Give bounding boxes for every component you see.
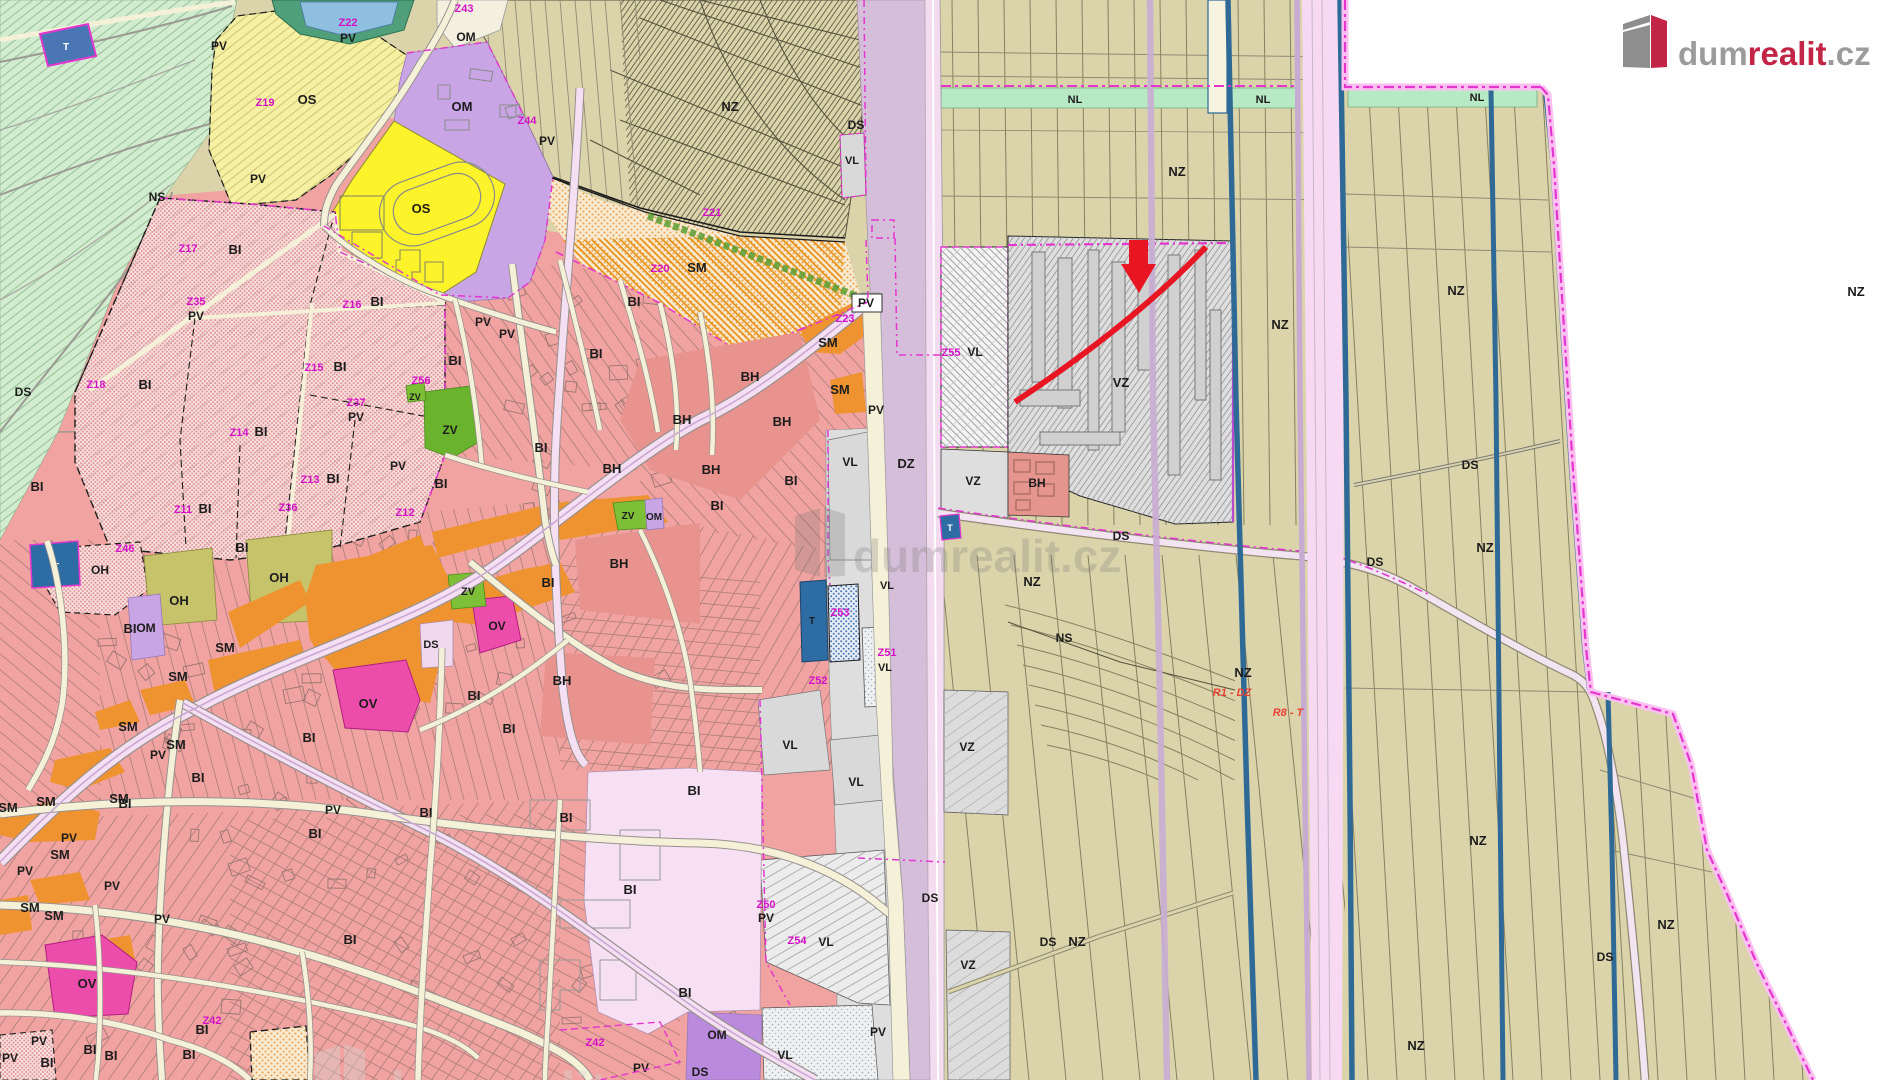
svg-text:OM: OM: [707, 1028, 726, 1042]
svg-text:dumrealit.cz: dumrealit.cz: [1678, 35, 1871, 72]
svg-text:DS: DS: [1462, 458, 1479, 472]
svg-text:PV: PV: [499, 327, 515, 341]
svg-text:Z15: Z15: [305, 362, 324, 374]
svg-text:BI: BI: [124, 621, 137, 636]
svg-text:VL: VL: [842, 455, 857, 469]
svg-text:VZ: VZ: [965, 474, 980, 488]
svg-text:PV: PV: [340, 31, 356, 45]
svg-text:PV: PV: [250, 172, 266, 186]
svg-text:SM: SM: [168, 669, 188, 684]
svg-text:Z52: Z52: [809, 675, 828, 687]
svg-text:BI: BI: [139, 377, 152, 392]
svg-text:PV: PV: [2, 1051, 18, 1065]
svg-text:BI: BI: [344, 932, 357, 947]
svg-text:PV: PV: [348, 410, 364, 424]
svg-text:SM: SM: [44, 908, 64, 923]
svg-text:PV: PV: [188, 309, 204, 323]
svg-text:DS: DS: [848, 118, 865, 132]
svg-text:VL: VL: [782, 738, 797, 752]
svg-text:OH: OH: [169, 593, 189, 608]
svg-text:NZ: NZ: [1168, 164, 1185, 179]
svg-text:BI: BI: [334, 359, 347, 374]
svg-text:ZV: ZV: [409, 392, 421, 402]
svg-text:SM: SM: [118, 719, 138, 734]
svg-text:VL: VL: [845, 155, 859, 167]
svg-text:NL: NL: [1068, 94, 1083, 106]
svg-text:Z20: Z20: [651, 263, 670, 275]
svg-text:PV: PV: [211, 39, 227, 53]
svg-text:DS: DS: [692, 1065, 709, 1079]
svg-text:BI: BI: [309, 826, 322, 841]
svg-text:PV: PV: [31, 1034, 47, 1048]
svg-text:SM: SM: [0, 800, 18, 815]
svg-text:BH: BH: [1028, 476, 1045, 490]
svg-text:Z55: Z55: [942, 347, 961, 359]
svg-text:DS: DS: [1367, 555, 1384, 569]
svg-text:SM: SM: [830, 382, 850, 397]
svg-text:OS: OS: [298, 92, 317, 107]
svg-text:SM: SM: [109, 791, 129, 806]
svg-text:OS: OS: [412, 201, 431, 216]
svg-text:Z18: Z18: [87, 379, 106, 391]
svg-text:OV: OV: [359, 696, 378, 711]
svg-text:ZV: ZV: [442, 423, 457, 437]
svg-text:Z56: Z56: [412, 375, 431, 387]
svg-text:Z22: Z22: [339, 17, 358, 29]
svg-text:SM: SM: [36, 794, 56, 809]
svg-text:PV: PV: [858, 296, 874, 310]
svg-text:NZ: NZ: [1234, 665, 1251, 680]
svg-text:Z50: Z50: [757, 899, 776, 911]
svg-text:BI: BI: [183, 1047, 196, 1062]
svg-text:BI: BI: [711, 498, 724, 513]
svg-text:BI: BI: [560, 810, 573, 825]
svg-text:dumrealit.cz: dumrealit.cz: [373, 1062, 676, 1080]
svg-text:BH: BH: [673, 412, 692, 427]
svg-text:OH: OH: [91, 563, 109, 577]
svg-text:NZ: NZ: [1407, 1038, 1424, 1053]
svg-text:BI: BI: [84, 1042, 97, 1057]
svg-text:PV: PV: [758, 911, 774, 925]
svg-text:BI: BI: [420, 805, 433, 820]
svg-text:OH: OH: [269, 570, 289, 585]
svg-text:PV: PV: [17, 864, 33, 878]
svg-text:SM: SM: [818, 335, 838, 350]
svg-text:NZ: NZ: [721, 99, 738, 114]
svg-text:Z35: Z35: [187, 296, 206, 308]
svg-text:NZ: NZ: [1469, 833, 1486, 848]
svg-text:SM: SM: [687, 260, 707, 275]
svg-text:BH: BH: [603, 461, 622, 476]
svg-text:ZV: ZV: [622, 511, 635, 522]
svg-text:BH: BH: [741, 369, 760, 384]
svg-text:OM: OM: [646, 512, 662, 523]
svg-text:Z37: Z37: [347, 397, 366, 409]
svg-text:BI: BI: [542, 575, 555, 590]
svg-text:BI: BI: [303, 730, 316, 745]
svg-text:BI: BI: [503, 721, 516, 736]
svg-text:PV: PV: [870, 1025, 886, 1039]
svg-text:Z16: Z16: [343, 299, 362, 311]
svg-text:Z42: Z42: [586, 1037, 605, 1049]
svg-text:BI: BI: [327, 471, 340, 486]
svg-text:PV: PV: [390, 459, 406, 473]
svg-text:Z11: Z11: [174, 504, 192, 516]
svg-text:Z53: Z53: [831, 607, 850, 619]
svg-text:DZ: DZ: [897, 456, 914, 471]
svg-text:NS: NS: [1056, 631, 1073, 645]
svg-text:VZ: VZ: [1113, 375, 1130, 390]
svg-text:BI: BI: [199, 501, 212, 516]
svg-text:Z54: Z54: [788, 935, 808, 947]
svg-text:BI: BI: [688, 783, 701, 798]
svg-text:DS: DS: [1597, 950, 1614, 964]
svg-text:NS: NS: [149, 190, 166, 204]
svg-text:PV: PV: [104, 879, 120, 893]
svg-text:R1 - DZ: R1 - DZ: [1213, 687, 1253, 699]
svg-text:OM: OM: [452, 99, 473, 114]
svg-text:BI: BI: [679, 985, 692, 1000]
svg-text:NL: NL: [1256, 94, 1271, 106]
svg-text:NZ: NZ: [1476, 540, 1493, 555]
svg-text:Z36: Z36: [279, 502, 298, 514]
svg-text:BI: BI: [624, 882, 637, 897]
svg-text:BH: BH: [702, 462, 721, 477]
svg-text:DS: DS: [423, 639, 438, 651]
svg-text:Z43: Z43: [455, 3, 474, 15]
svg-text:BI: BI: [236, 540, 249, 555]
svg-text:BI: BI: [468, 688, 481, 703]
svg-text:BI: BI: [41, 1055, 54, 1070]
svg-text:Z13: Z13: [301, 474, 320, 486]
svg-text:NZ: NZ: [1847, 284, 1864, 299]
svg-text:SM: SM: [20, 900, 40, 915]
svg-text:R8 - T: R8 - T: [1273, 707, 1305, 719]
svg-text:PV: PV: [868, 403, 884, 417]
svg-text:BI: BI: [255, 424, 268, 439]
svg-text:BI: BI: [105, 1048, 118, 1063]
svg-text:DS: DS: [15, 385, 32, 399]
svg-text:BI: BI: [449, 353, 462, 368]
svg-text:PV: PV: [61, 831, 77, 845]
svg-text:Z23: Z23: [836, 313, 855, 325]
svg-text:Z17: Z17: [179, 243, 198, 255]
svg-text:BI: BI: [628, 294, 641, 309]
svg-text:Z12: Z12: [396, 507, 415, 519]
svg-text:VL: VL: [967, 345, 982, 359]
svg-text:BI: BI: [229, 242, 242, 257]
svg-text:PV: PV: [154, 912, 170, 926]
svg-text:Z42: Z42: [203, 1015, 222, 1027]
svg-text:Z51: Z51: [878, 647, 897, 659]
svg-text:Z19: Z19: [256, 97, 275, 109]
svg-text:Z21: Z21: [703, 207, 722, 219]
svg-text:BH: BH: [553, 673, 572, 688]
svg-text:T: T: [809, 616, 815, 627]
svg-text:BI: BI: [785, 473, 798, 488]
svg-text:VZ: VZ: [960, 958, 975, 972]
svg-text:VL: VL: [777, 1048, 792, 1062]
svg-text:BH: BH: [773, 414, 792, 429]
svg-text:NL: NL: [1470, 92, 1485, 104]
svg-text:Z44: Z44: [518, 115, 538, 127]
svg-text:dumrealit.cz: dumrealit.cz: [853, 530, 1121, 582]
svg-text:NZ: NZ: [1657, 917, 1674, 932]
svg-text:PV: PV: [325, 803, 341, 817]
svg-text:OV: OV: [78, 976, 97, 991]
svg-text:SM: SM: [50, 847, 70, 862]
svg-text:PV: PV: [539, 134, 555, 148]
svg-text:BI: BI: [371, 294, 384, 309]
svg-text:OM: OM: [456, 30, 475, 44]
svg-text:OM: OM: [136, 621, 155, 635]
svg-text:PV: PV: [475, 315, 491, 329]
svg-text:VL: VL: [818, 935, 833, 949]
svg-text:SM: SM: [215, 640, 235, 655]
svg-text:VL: VL: [878, 662, 892, 674]
svg-text:DS: DS: [922, 891, 939, 905]
svg-text:DS: DS: [1040, 935, 1057, 949]
svg-text:OV: OV: [488, 619, 505, 633]
svg-text:BI: BI: [31, 479, 44, 494]
svg-text:PV: PV: [150, 748, 166, 762]
svg-text:ZV: ZV: [461, 586, 476, 598]
svg-text:BI: BI: [535, 440, 548, 455]
svg-text:BI: BI: [192, 770, 205, 785]
svg-text:BH: BH: [610, 556, 629, 571]
svg-text:NZ: NZ: [1068, 934, 1085, 949]
svg-text:VZ: VZ: [959, 740, 974, 754]
svg-text:BI: BI: [590, 346, 603, 361]
svg-text:VL: VL: [848, 775, 863, 789]
svg-text:NZ: NZ: [1447, 283, 1464, 298]
svg-text:SM: SM: [166, 737, 186, 752]
svg-text:BI: BI: [435, 476, 448, 491]
svg-text:T: T: [63, 42, 69, 53]
svg-text:Z46: Z46: [116, 543, 135, 555]
svg-text:NZ: NZ: [1271, 317, 1288, 332]
svg-text:Z14: Z14: [230, 427, 250, 439]
